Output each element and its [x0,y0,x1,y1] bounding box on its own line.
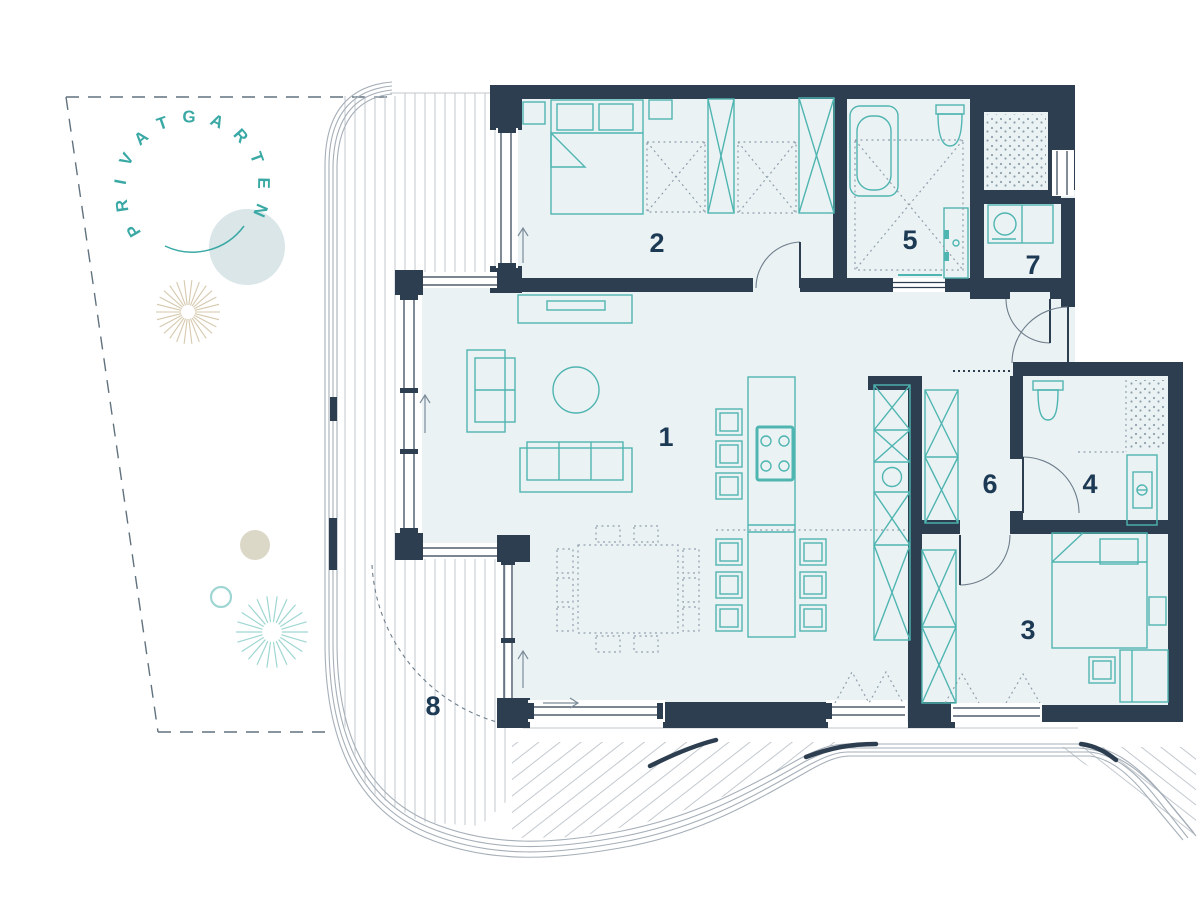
garden-ring-icon [211,587,231,607]
tree-ray [184,280,187,305]
garden-tree-teal-icon [236,596,308,667]
wall-room4-west-stub [1010,511,1023,520]
wall-niche-bottom [970,190,1061,204]
tree-ray [248,605,265,625]
garden-tree-tan-icon [156,280,220,344]
tree-ray [276,599,287,623]
wall-pillar-sw [497,698,530,728]
tree-ray [157,314,181,320]
tree-ray [248,640,265,660]
wall-east-upper-2 [1061,198,1075,307]
garden-label-text: PRIVATGARTEN [110,107,273,240]
tree-ray [257,599,268,623]
room-label-2: 2 [649,228,664,258]
wall-room7-south-left [970,285,1010,299]
wall-top [490,85,1075,99]
wall-east-lower [1168,362,1183,722]
tree-ray [279,605,296,625]
window-west-glazing [398,295,422,533]
tree-ray [189,319,192,344]
window-bay-south [423,543,497,559]
terrace-post-1 [330,397,337,421]
room-label-8: 8 [425,691,440,721]
wall-living-south [663,702,828,728]
shower-niche-tiles [986,114,1046,190]
window-bay-north [423,272,497,288]
room-label-6: 6 [982,469,997,499]
wall-pillar-bay-se [497,535,530,562]
wall-room2-south-left [518,278,753,292]
floorplan-canvas: PRIVATGARTEN [0,0,1200,900]
tree-ray [189,280,192,305]
bath4-shower-tiles [1128,380,1166,450]
tree-ray [195,314,219,320]
wall-pillar-west-s [395,533,423,560]
room-label-7: 7 [1025,250,1040,280]
wall-room3-south-right [1040,705,1183,722]
tree-ray [273,596,277,622]
wall-room7-south-right [1050,285,1061,299]
tree-ray [273,642,277,668]
wall-room4-north [1013,362,1183,376]
wall-pillar-west-n [395,270,423,295]
tree-ray [184,319,187,344]
wall-east-upper-1 [1061,85,1075,150]
terrace-post-2 [329,518,337,570]
window-room2-west [496,128,518,268]
deck-hatch-corner [1045,747,1196,840]
tree-ray [267,596,271,622]
wall-room4-west [1010,376,1023,459]
wall-room2-bath5 [833,99,847,278]
tree-ray [195,304,219,310]
tree-ray [157,304,181,310]
window-room3-south [951,703,1042,722]
floorplan-svg: PRIVATGARTEN [0,0,1200,900]
tree-ray [267,642,271,668]
room-label-4: 4 [1082,469,1097,499]
wall-pillar-nw [490,85,522,130]
room-label-1: 1 [658,422,673,452]
wall-room3-south-left [908,702,955,728]
garden-bush-beige [240,530,270,560]
room-label-3: 3 [1020,615,1035,645]
wall-room2-south-right [800,278,893,292]
wall-room4-room3 [1010,520,1168,534]
tree-ray [276,641,287,665]
tree-ray [279,640,296,660]
window-east [1052,150,1074,196]
room-label-5: 5 [902,225,917,255]
tree-ray [257,641,268,665]
window-living-south-2 [826,700,907,722]
